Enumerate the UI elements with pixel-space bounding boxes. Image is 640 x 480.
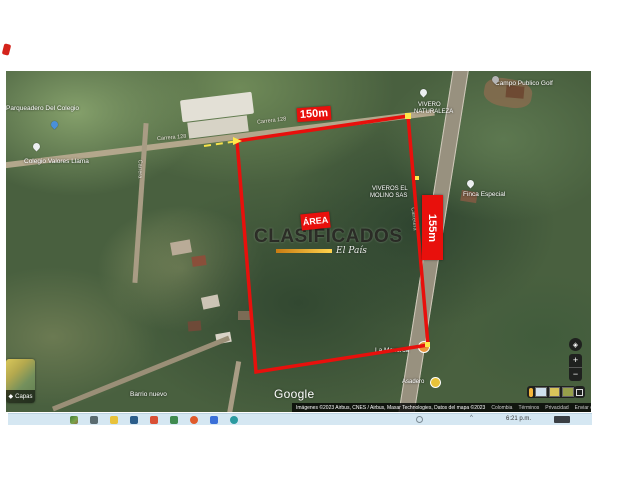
- zoom-out-button[interactable]: −: [569, 368, 582, 381]
- fullscreen-button[interactable]: [574, 386, 585, 398]
- length-label-side-text: 155m: [427, 213, 439, 241]
- length-label-side: 155m: [422, 195, 443, 260]
- pegman-bar: [527, 386, 576, 398]
- attribution-text: Imágenes ©2023 Airbus, CNES / Airbus, Ma…: [296, 405, 485, 411]
- layers-icon: ◆: [9, 393, 14, 400]
- photo-thumbnail[interactable]: [535, 387, 547, 397]
- layers-control[interactable]: ◆ Capas: [6, 359, 35, 403]
- parcel-outline: [6, 71, 591, 412]
- taskbar-clock[interactable]: 6:21 p.m.: [506, 416, 531, 422]
- taskbar-icon-7[interactable]: [190, 416, 198, 424]
- tray-chevron-icon[interactable]: ^: [470, 415, 473, 421]
- pegman-icon[interactable]: [529, 388, 533, 397]
- layers-label: Capas: [15, 394, 32, 400]
- photo-thumbnail[interactable]: [562, 387, 574, 397]
- google-logo[interactable]: Google: [274, 387, 315, 401]
- compass-button[interactable]: ◈: [569, 338, 582, 351]
- taskbar-icon-4[interactable]: [130, 416, 138, 424]
- taskbar-icon-6[interactable]: [170, 416, 178, 424]
- red-mark: [2, 43, 11, 55]
- attribution-link-feedback[interactable]: Enviar comentarios: [575, 405, 591, 411]
- attribution-link-privacy[interactable]: Privacidad: [545, 405, 568, 411]
- taskbar-icon-1[interactable]: [70, 416, 78, 424]
- taskbar-icon-9[interactable]: [230, 416, 238, 424]
- fullscreen-icon: [576, 389, 583, 396]
- search-icon[interactable]: [416, 416, 423, 423]
- attribution-link-region[interactable]: Colombia: [491, 405, 512, 411]
- attribution-bar: Imágenes ©2023 Airbus, CNES / Airbus, Ma…: [292, 403, 591, 412]
- taskbar: ^ 6:21 p.m.: [8, 413, 592, 425]
- zoom-control: + −: [569, 354, 582, 381]
- photo-thumbnail[interactable]: [549, 387, 561, 397]
- taskbar-icon-5[interactable]: [150, 416, 158, 424]
- zoom-in-button[interactable]: +: [569, 354, 582, 368]
- taskbar-icon-3[interactable]: [110, 416, 118, 424]
- attribution-link-terms[interactable]: Términos: [518, 405, 539, 411]
- area-label: ÁREA: [300, 212, 331, 231]
- taskbar-icon-2[interactable]: [90, 416, 98, 424]
- taskbar-icon-8[interactable]: [210, 416, 218, 424]
- length-label-top: 150m: [297, 106, 332, 122]
- notification-button[interactable]: [554, 416, 570, 423]
- satellite-map[interactable]: 150m ÁREA 155m CLASIFICADOS El País Parq…: [6, 71, 591, 412]
